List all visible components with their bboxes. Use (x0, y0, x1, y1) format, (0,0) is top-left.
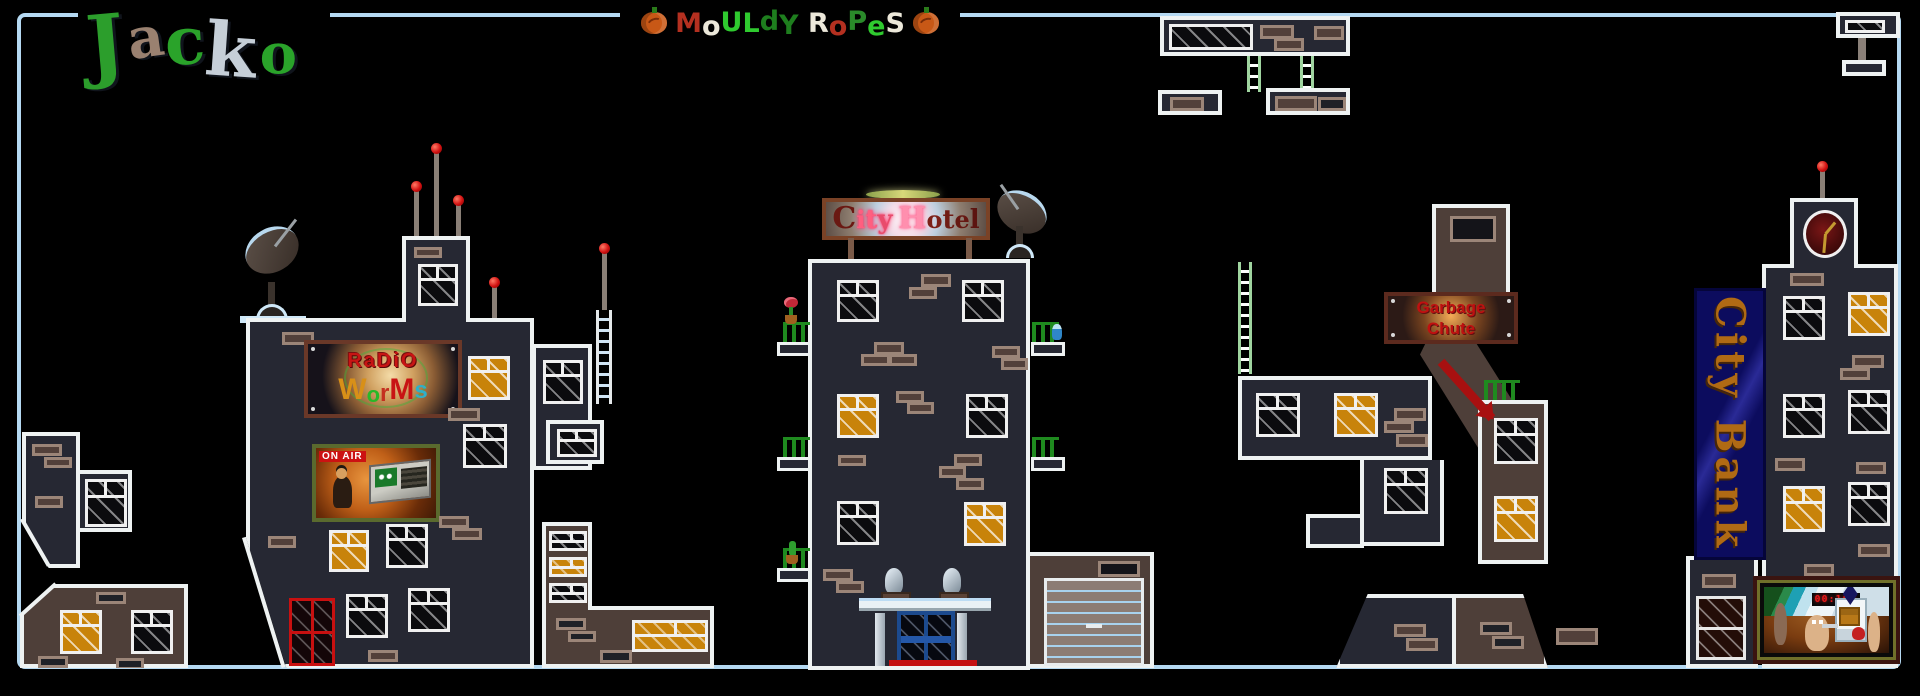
brick (838, 455, 866, 466)
brick (1492, 636, 1524, 649)
lit-window (468, 356, 510, 400)
logo-letter: a (124, 8, 168, 69)
brick (861, 354, 890, 366)
bank-annex (1686, 556, 1758, 668)
ladder (1300, 56, 1314, 92)
brick (368, 650, 398, 662)
brick (1274, 38, 1304, 51)
worm-statue (943, 568, 961, 594)
tv-worm (1774, 603, 1787, 645)
window (85, 479, 127, 527)
hotel-building (808, 259, 1030, 670)
window (837, 501, 879, 545)
console-screen (374, 467, 396, 488)
floating-platform (546, 420, 604, 464)
ladder (1247, 56, 1261, 92)
brick (44, 457, 72, 468)
brick (1804, 564, 1834, 576)
clock-tower (1790, 198, 1858, 268)
brick (1556, 628, 1598, 645)
brick (1394, 408, 1426, 421)
window (386, 524, 428, 568)
corner-platform (1836, 12, 1900, 38)
chute-tower (1432, 204, 1510, 296)
city-bank-sign: City Bank (1694, 288, 1766, 560)
lit-window (1334, 393, 1378, 437)
lit-window (964, 502, 1006, 546)
left-ground-building (20, 584, 188, 668)
blue-figure (1052, 324, 1062, 340)
low-building-base (542, 606, 714, 668)
antenna-icon (1820, 170, 1825, 198)
window (131, 610, 173, 654)
author-logo: Jacko (78, 0, 330, 100)
onair-label: ON AIR (319, 451, 366, 462)
city-hotel-sign-text: City Hotel (832, 204, 979, 234)
logo-letter: c (162, 7, 207, 76)
radio-building-upper: RaDiO WorMs (246, 318, 534, 422)
window (1256, 393, 1300, 437)
dark-window (1696, 596, 1746, 660)
brick (600, 650, 632, 663)
entrance-column (875, 613, 885, 666)
brick (452, 528, 482, 540)
window (1169, 24, 1253, 50)
antenna-icon (602, 252, 607, 310)
radio-sign-line2: WorMs (308, 375, 458, 405)
door-mat (889, 660, 977, 666)
brick (38, 656, 68, 668)
balcony-slab (777, 568, 811, 582)
tv-worm (1868, 612, 1880, 652)
brick (1275, 96, 1317, 111)
window (557, 429, 597, 457)
window (418, 264, 458, 306)
brick (823, 569, 853, 581)
brick (32, 444, 62, 456)
mixing-console (369, 459, 431, 505)
brick (1406, 638, 1438, 651)
lit-window (60, 610, 102, 654)
level-canvas: Jacko MoULdY RoPeS (0, 0, 1920, 696)
pumpkin-icon (641, 12, 667, 34)
pumpkin-icon (913, 12, 939, 34)
brick (1314, 26, 1344, 40)
garage-door (1044, 578, 1144, 666)
window (837, 280, 879, 322)
radio-building-lower: ON AIR (246, 422, 534, 668)
antenna-icon (414, 190, 419, 238)
brick (1852, 355, 1884, 368)
hanging-platform (1160, 16, 1350, 56)
brick (556, 618, 586, 630)
corner-platform-small (1842, 60, 1886, 76)
lit-window (1783, 486, 1825, 532)
tv-crate-icon (1839, 607, 1860, 626)
brick (1394, 624, 1426, 637)
map-title: MoULdY RoPeS (620, 0, 960, 46)
window (1848, 390, 1890, 434)
balcony-slab (777, 457, 811, 471)
mid-building-step (1306, 514, 1364, 548)
balcony-railing (1032, 437, 1059, 459)
garage-building (1026, 552, 1154, 668)
tv-worm-gun (1822, 624, 1838, 628)
lit-window (1848, 292, 1890, 336)
balcony-railing (783, 322, 810, 344)
brick (907, 402, 934, 414)
tv-worm (1805, 615, 1829, 651)
console-keys (401, 466, 427, 489)
window (463, 424, 507, 468)
lit-window (1494, 496, 1538, 542)
brick (1260, 25, 1294, 39)
window (543, 360, 583, 404)
brick (836, 581, 864, 593)
vent-window (1098, 561, 1140, 577)
small-platform (1158, 90, 1222, 115)
radio-tower (402, 236, 470, 322)
brick (96, 592, 126, 604)
balcony-slab (1031, 457, 1065, 471)
balcony-railing (783, 437, 810, 459)
small-platform (1266, 88, 1350, 115)
window (549, 531, 587, 551)
clock-icon (1803, 210, 1847, 258)
brick (1318, 97, 1346, 111)
entrance-column (957, 613, 967, 666)
logo-letter: o (260, 26, 297, 82)
brick (268, 536, 296, 548)
plant-pot (786, 555, 798, 564)
tv-worm-eyes (1812, 620, 1816, 624)
logo-letter: J (83, 2, 128, 85)
onair-studio-window: ON AIR (312, 444, 440, 522)
brick (1856, 462, 1886, 474)
garbage-sign-line1: Garbage (1388, 297, 1514, 318)
tv-scene: 00:100 (1764, 587, 1889, 653)
map-title-text: MoULdY RoPeS (675, 10, 905, 37)
balcony-slab (1031, 342, 1065, 356)
window (1845, 20, 1885, 33)
brick (414, 247, 442, 258)
lit-window (549, 557, 587, 577)
antenna-icon (434, 152, 439, 238)
brick (1858, 544, 1890, 557)
hanging-ladder (596, 310, 612, 404)
window (1848, 482, 1890, 526)
window (346, 594, 388, 638)
brick (939, 466, 966, 478)
lit-window (837, 394, 879, 438)
hotel-door (897, 611, 955, 666)
garbage-sign-text: Garbage Chute (1388, 297, 1514, 339)
window (408, 588, 450, 632)
worms-tv-picture: 00:100 (1753, 576, 1900, 664)
radio-sign-line1: RaDiO (308, 350, 458, 373)
dj-figure (333, 476, 352, 508)
plant-pot (785, 315, 797, 324)
brick (568, 631, 596, 642)
brick (1384, 421, 1414, 433)
window (966, 394, 1008, 438)
mid-building-column (1360, 460, 1444, 546)
support-post (1858, 38, 1866, 60)
brick (1396, 434, 1428, 447)
brick (921, 274, 951, 287)
window (962, 280, 1004, 322)
brick (909, 287, 937, 299)
worm-statue (885, 568, 903, 594)
antenna-icon (492, 286, 497, 320)
lit-window (329, 530, 369, 572)
entrance-canopy (859, 598, 991, 611)
cactus-icon (789, 541, 796, 556)
window (1783, 394, 1825, 438)
garbage-sign-line2: Chute (1388, 318, 1514, 339)
brick (448, 408, 480, 421)
brick (1775, 458, 1805, 471)
city-bank-sign-text: City Bank (1707, 296, 1754, 551)
antenna-icon (456, 204, 461, 238)
brick (889, 354, 917, 366)
brick (992, 346, 1020, 358)
balcony-slab (777, 342, 811, 356)
radio-worms-sign: RaDiO WorMs (304, 340, 462, 418)
window (1783, 296, 1825, 340)
garbage-chute-sign: Garbage Chute (1384, 292, 1518, 344)
mid-building-top (1238, 376, 1432, 460)
brick (1702, 574, 1736, 588)
logo-letter: k (203, 12, 259, 89)
window (549, 583, 587, 603)
brick (1840, 368, 1870, 380)
tv-moneybag-icon (1852, 627, 1865, 640)
brick (1001, 358, 1028, 370)
brick (1480, 622, 1512, 635)
brick (439, 516, 469, 528)
city-hotel-sign: City Hotel (822, 198, 990, 240)
brick (954, 454, 982, 466)
screw-icon (311, 407, 315, 411)
brick (35, 496, 63, 508)
brick (1170, 97, 1204, 111)
left-small-wing (76, 470, 132, 532)
brick (956, 478, 984, 490)
window (1384, 468, 1428, 514)
brick (1790, 273, 1824, 286)
lit-window (632, 620, 708, 652)
low-building-tower (542, 522, 592, 610)
vent-window (1450, 216, 1496, 242)
ladder (1238, 262, 1252, 374)
red-door (289, 598, 335, 666)
